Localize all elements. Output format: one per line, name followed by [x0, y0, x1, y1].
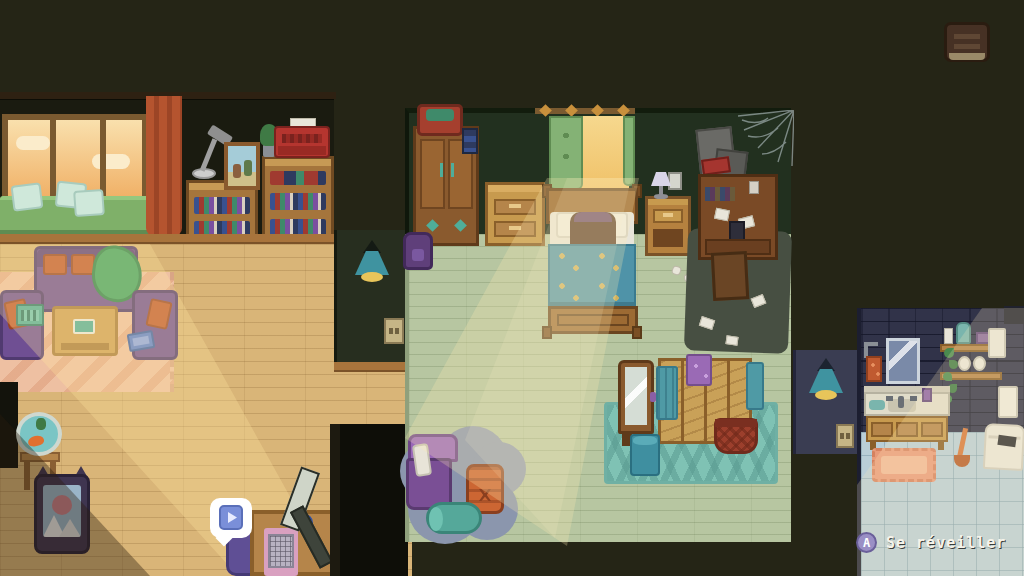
mirror-glass	[625, 367, 647, 425]
lamp-arm	[200, 138, 217, 171]
typewriter	[274, 118, 330, 160]
nightstand	[645, 196, 691, 256]
wake-prompt[interactable]: A Se réveiller	[856, 530, 1016, 558]
backpack-pocket	[412, 249, 424, 261]
pendant-lamp	[806, 358, 846, 404]
notebook	[729, 221, 745, 241]
journal-button[interactable]	[944, 22, 990, 62]
desk-paper	[714, 208, 730, 222]
dark-doorway	[330, 424, 408, 576]
baseboard	[0, 234, 334, 244]
lit-window	[535, 106, 635, 190]
bin-lid	[633, 436, 657, 445]
bolster-pillow	[426, 502, 482, 534]
orange-towel	[866, 356, 882, 382]
rod-finial	[617, 104, 630, 117]
drawer-handle	[509, 204, 521, 208]
towel-purple	[686, 354, 712, 386]
dresser-top	[488, 185, 542, 192]
journal-pages	[949, 53, 985, 60]
tap	[886, 396, 893, 401]
book-stack	[462, 128, 478, 154]
light-switch[interactable]	[836, 424, 854, 448]
cloud	[16, 136, 50, 150]
switch-button	[846, 433, 850, 439]
typewriter-front	[278, 146, 326, 155]
rod-finial	[565, 104, 578, 117]
pendant-lamp	[352, 240, 392, 286]
bed-post	[632, 326, 642, 339]
keyboard	[268, 534, 294, 568]
waste-bin	[630, 434, 660, 476]
wardrobe-accent	[454, 219, 467, 232]
journal-line	[954, 44, 980, 49]
floor-paper	[725, 335, 738, 346]
desk-chair	[711, 251, 749, 301]
laundry-basket	[714, 418, 758, 454]
switch-button	[395, 328, 399, 334]
photo-figure	[244, 160, 252, 176]
play-triangle	[228, 512, 237, 523]
drawer-handle	[663, 213, 673, 217]
desk-hutch-shelf	[705, 187, 735, 201]
light-switch[interactable]	[384, 318, 404, 344]
vanity-drawer	[871, 422, 893, 437]
game-screen: A Se réveiller	[0, 0, 1024, 576]
shelf-top	[265, 159, 331, 166]
play-media-icon	[219, 505, 243, 530]
book-row	[194, 197, 250, 214]
basket-rim	[715, 419, 757, 427]
nightstand-shelf	[653, 229, 683, 247]
bottle	[944, 328, 953, 344]
bowl-plant	[36, 418, 46, 430]
a-button-label: A	[863, 536, 870, 550]
gamepad-a-button: A	[856, 532, 877, 553]
mirror-frame	[618, 360, 654, 434]
thought-bubble[interactable]	[210, 498, 254, 548]
tap	[910, 396, 917, 401]
book-row	[270, 171, 326, 185]
towel-teal	[746, 362, 764, 410]
towel-teal	[656, 366, 678, 420]
rod-finial	[539, 104, 552, 117]
lamp-shade	[651, 172, 671, 186]
lamp-glow	[361, 272, 383, 282]
soap-dish	[869, 400, 885, 410]
bookshelf	[262, 156, 334, 246]
bathroom-mirror	[886, 338, 920, 384]
backpack	[403, 232, 433, 270]
switch-button	[840, 433, 844, 439]
typewriter-keys	[282, 134, 322, 143]
lamp-foot	[654, 194, 668, 199]
bolster-cap	[429, 507, 443, 531]
cluttered-desk	[698, 174, 778, 260]
towel-ring	[864, 342, 884, 386]
cloud	[92, 154, 130, 169]
pencil-cup	[749, 181, 759, 194]
bench-pillow	[11, 182, 44, 211]
window-mullion	[100, 120, 106, 198]
wardrobe-accent	[426, 219, 439, 232]
lamp-glow	[815, 390, 837, 400]
wake-prompt-label: Se réveiller	[886, 534, 1006, 552]
suitcase-contents	[426, 109, 454, 121]
suitcase	[417, 104, 463, 136]
cobweb-icon	[738, 110, 794, 166]
book-row	[270, 193, 326, 210]
green-curtain	[623, 116, 635, 186]
photo-frame	[224, 142, 260, 190]
switch-button	[389, 328, 393, 334]
faucet	[898, 396, 904, 408]
bench-pillow	[73, 189, 105, 217]
door-handle	[451, 163, 454, 177]
fish	[27, 434, 45, 447]
door-handle	[440, 163, 443, 177]
window-mullion	[50, 120, 56, 198]
rod-finial	[591, 104, 604, 117]
table-lamp	[650, 172, 672, 200]
baseboard	[334, 362, 412, 372]
red-curtain	[146, 96, 182, 236]
photo-figure	[233, 164, 241, 178]
journal-line	[954, 34, 980, 39]
